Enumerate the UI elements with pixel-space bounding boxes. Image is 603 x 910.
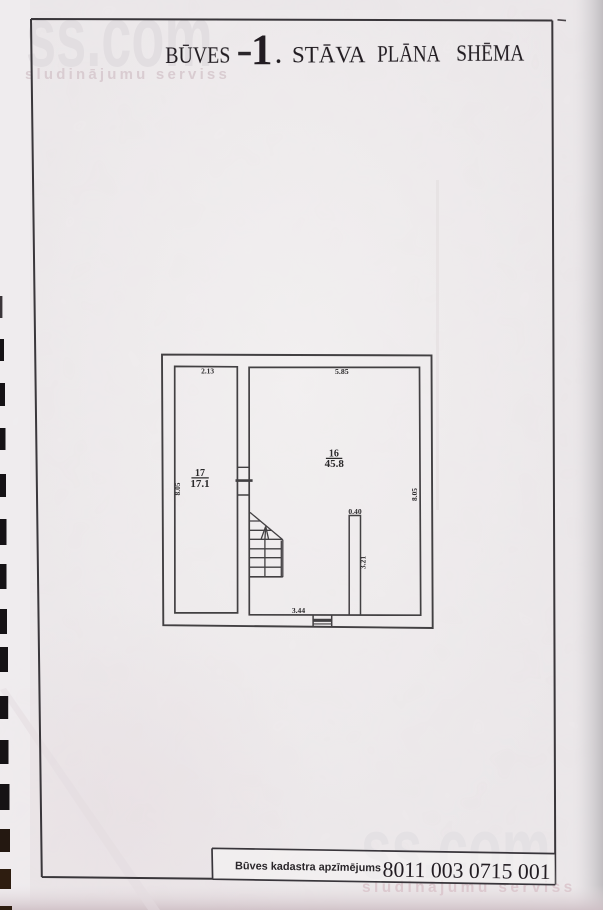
svg-text:BŪVES: BŪVES xyxy=(165,43,230,68)
svg-text:.: . xyxy=(276,43,282,68)
svg-text:Būves kadastra apzīmējums: Būves kadastra apzīmējums xyxy=(235,860,381,874)
svg-text:8.05: 8.05 xyxy=(173,482,182,495)
svg-text:2.13: 2.13 xyxy=(201,366,214,375)
svg-text:8011 003 0715 001: 8011 003 0715 001 xyxy=(382,857,550,884)
svg-text:8.05: 8.05 xyxy=(410,488,419,501)
svg-text:3.44: 3.44 xyxy=(292,606,305,615)
svg-text:PLĀNA: PLĀNA xyxy=(377,41,440,66)
svg-text:SHĒMA: SHĒMA xyxy=(456,41,524,66)
svg-text:5.85: 5.85 xyxy=(335,367,349,376)
svg-text:3.21: 3.21 xyxy=(358,556,367,569)
svg-text:STĀVA: STĀVA xyxy=(292,42,366,67)
svg-text:0.40: 0.40 xyxy=(348,507,361,516)
svg-text:1: 1 xyxy=(251,27,273,74)
svg-text:45.8: 45.8 xyxy=(325,458,345,470)
svg-text:17.1: 17.1 xyxy=(190,478,209,490)
svg-text:sludinājumu serviss: sludinājumu serviss xyxy=(25,66,230,83)
